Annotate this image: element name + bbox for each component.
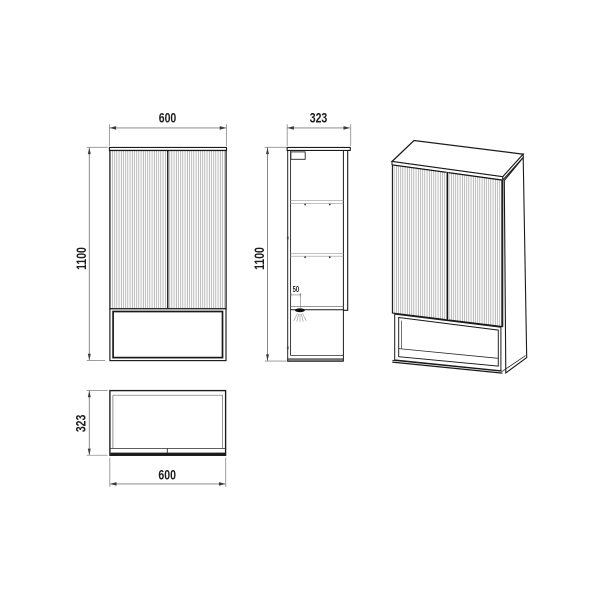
svg-text:1100: 1100	[74, 247, 90, 270]
svg-text:50: 50	[293, 284, 299, 295]
svg-text:600: 600	[158, 467, 176, 483]
svg-text:1100: 1100	[251, 247, 267, 270]
svg-text:323: 323	[310, 110, 328, 126]
svg-text:323: 323	[73, 415, 89, 433]
svg-text:600: 600	[159, 110, 177, 126]
